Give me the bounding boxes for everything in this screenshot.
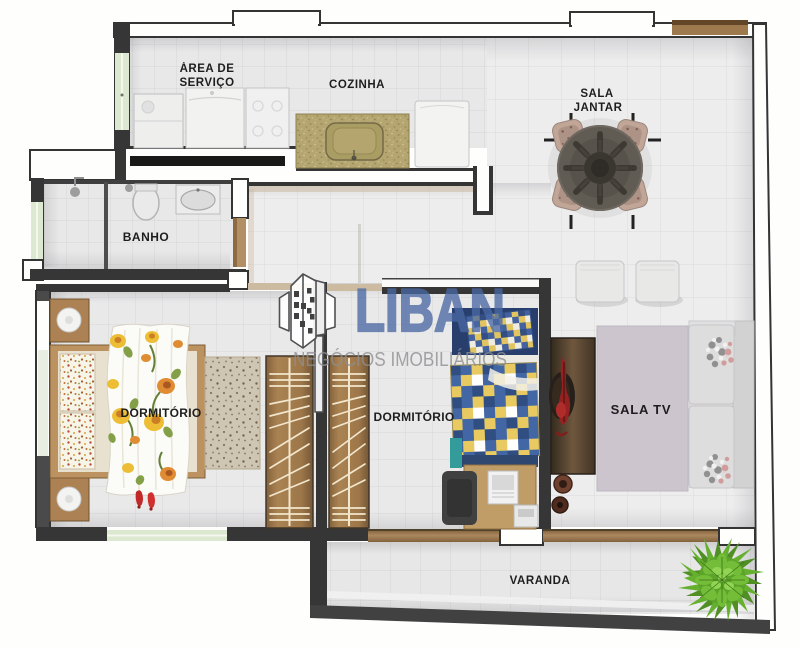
svg-text:DORMITÓRIO: DORMITÓRIO: [121, 405, 202, 420]
svg-text:NEGÓCIOS IMOBILIÁRIOS: NEGÓCIOS IMOBILIÁRIOS: [293, 348, 507, 371]
svg-text:SALA TV: SALA TV: [611, 402, 672, 417]
svg-text:SERVIÇO: SERVIÇO: [179, 77, 234, 89]
svg-text:COZINHA: COZINHA: [329, 79, 385, 91]
svg-text:VARANDA: VARANDA: [510, 575, 571, 587]
svg-text:DORMITÓRIO: DORMITÓRIO: [374, 409, 455, 424]
svg-text:LIBAN: LIBAN: [355, 277, 505, 344]
svg-text:ÁREA DE: ÁREA DE: [180, 62, 235, 75]
svg-text:BANHO: BANHO: [123, 230, 170, 244]
svg-text:SALA: SALA: [580, 88, 613, 100]
svg-text:JANTAR: JANTAR: [574, 102, 623, 114]
